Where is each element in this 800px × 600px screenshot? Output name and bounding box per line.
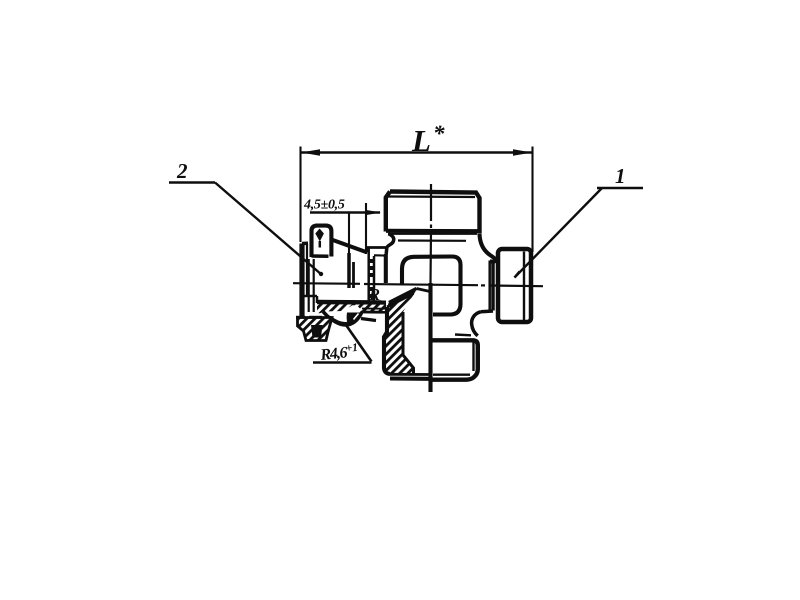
svg-text:4,5±0,5: 4,5±0,5 [303, 198, 345, 213]
svg-text:R4,6: R4,6 [319, 344, 349, 364]
svg-text:L: L [411, 123, 431, 158]
svg-text:+1: +1 [345, 342, 358, 355]
svg-text:2: 2 [176, 159, 188, 183]
svg-text:1: 1 [615, 164, 626, 188]
svg-text:*: * [433, 121, 445, 146]
